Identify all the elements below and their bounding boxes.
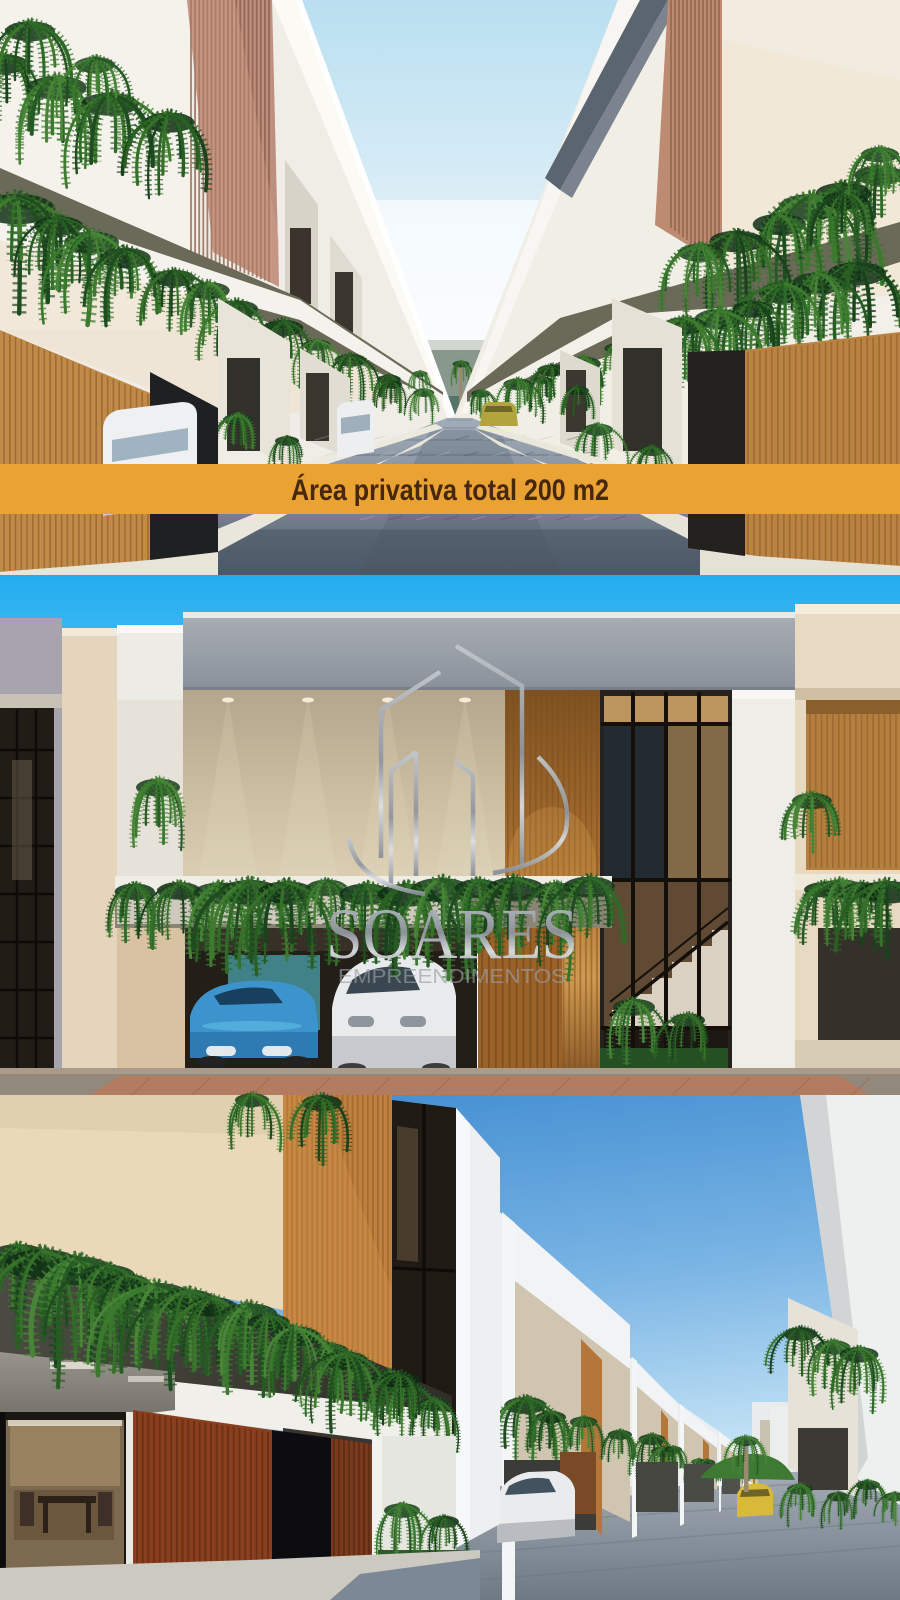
svg-text:Área privativa total 200 m2: Área privativa total 200 m2 (291, 473, 609, 507)
svg-text:EMPREENDIMENTOS: EMPREENDIMENTOS (338, 966, 566, 988)
svg-text:SOARES: SOARES (326, 894, 578, 974)
